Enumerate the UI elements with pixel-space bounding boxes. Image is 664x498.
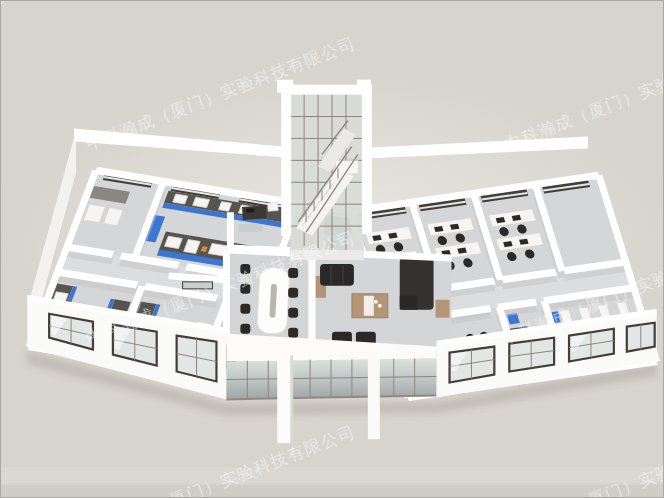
sofa-top [320, 264, 354, 286]
entrance-column [277, 356, 292, 444]
ground-band-dark [1, 485, 662, 497]
render-canvas: 中科瀚成（厦门）实验科技有限公司中科瀚成（厦门）实验科技有限公司中科瀚成（厦门）… [0, 0, 664, 498]
coffee-table [352, 294, 388, 318]
atrium-pillar-left [281, 85, 291, 236]
floorplan-render: 中科瀚成（厦门）实验科技有限公司中科瀚成（厦门）实验科技有限公司中科瀚成（厦门）… [1, 1, 663, 497]
sofa-large [400, 258, 434, 310]
atrium-pillar-right [362, 85, 372, 234]
lounge [312, 252, 451, 356]
side-table [436, 300, 450, 318]
stair-atrium [277, 80, 372, 260]
entrance-column [368, 354, 380, 440]
ground-band [1, 467, 662, 483]
